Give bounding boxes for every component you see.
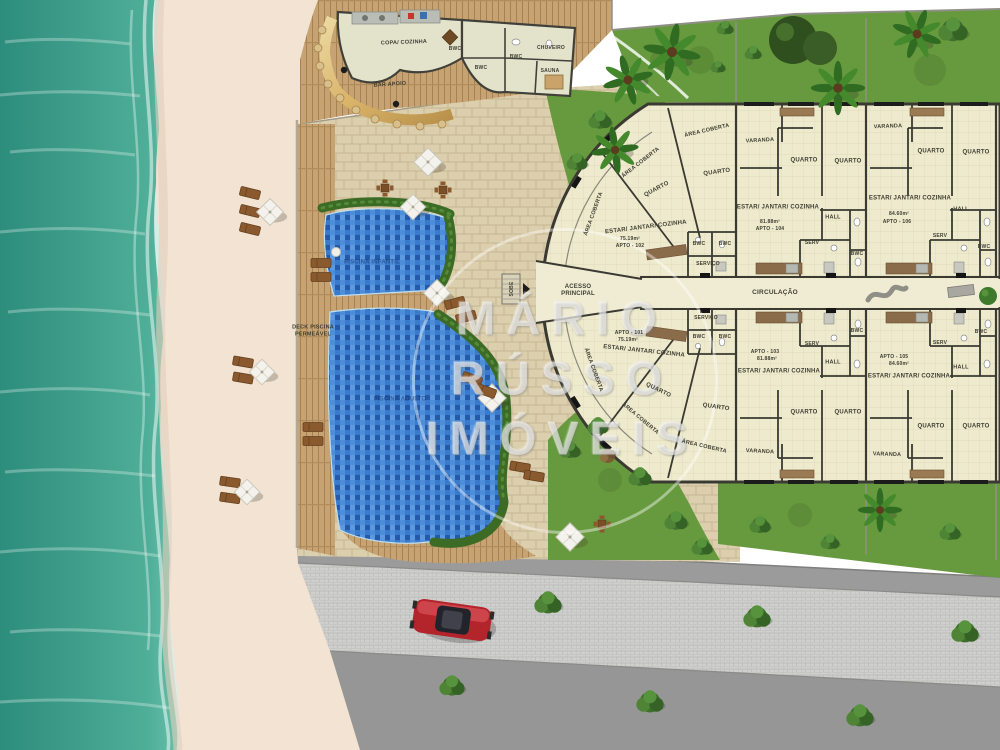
road bbox=[297, 542, 1000, 750]
site-plan-graphic bbox=[0, 0, 1000, 750]
corridor-tree bbox=[979, 287, 997, 305]
site-plan-scene: MÁRIO RÚSSO IMÓVEIS COPA/ COZINHABWCBWCB… bbox=[0, 0, 1000, 750]
